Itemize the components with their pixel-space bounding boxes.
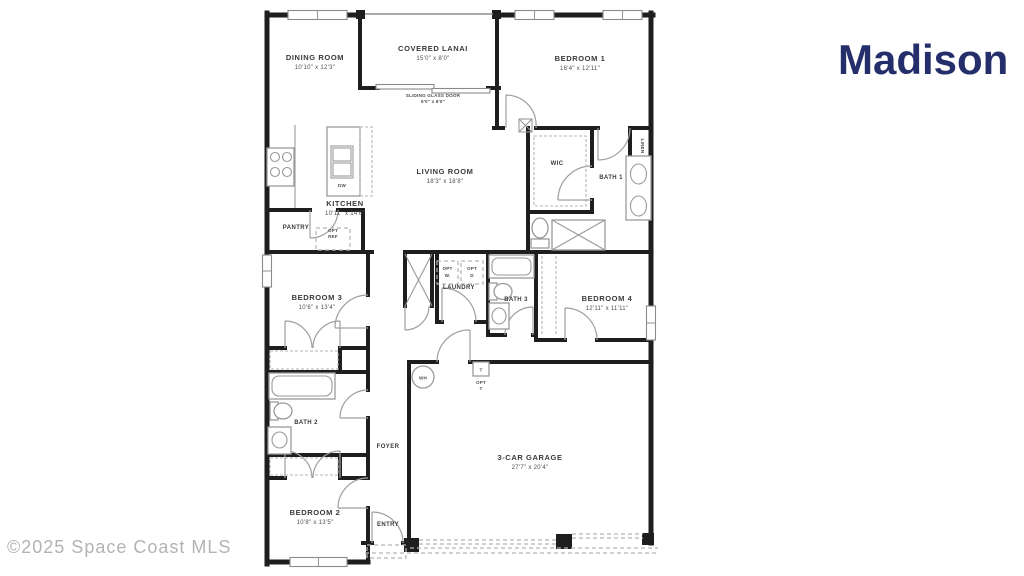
room-dims-bedroom3: 10'6" x 13'4" <box>299 305 336 311</box>
plan-name-title: Madison <box>838 36 1008 84</box>
room-dims-living: 18'3" x 18'8" <box>427 179 464 185</box>
label-opt-dryer-2: D <box>470 273 474 278</box>
room-label-entry: ENTRY <box>377 522 399 528</box>
room-dims-bedroom1: 16'4" x 12'11" <box>560 66 600 72</box>
floorplan-page: DINING ROOM 10'10" x 12'3" COVERED LANAI… <box>0 0 1024 576</box>
label-opt-ref-1: OPT <box>328 228 338 233</box>
label-opt-tank-1: OPT <box>476 380 486 385</box>
label-water-heater: WH <box>419 376 428 381</box>
bath2-fixtures <box>268 373 335 454</box>
label-opt-dryer-1: OPT <box>467 266 477 271</box>
label-opt-ref-2: REF <box>328 234 338 239</box>
room-label-laundry: LAUNDRY <box>443 285 475 291</box>
hall-linen-closet <box>405 254 432 306</box>
room-label-lanai: COVERED LANAI <box>398 44 468 53</box>
room-label-kitchen: KITCHEN <box>326 199 364 208</box>
mls-watermark: ©2025 Space Coast MLS <box>7 537 231 558</box>
dims-sliding-glass-door: 6'0" x 8'0" <box>421 99 445 104</box>
bedroom4-closet-rod <box>542 256 556 336</box>
room-label-bath1: BATH 1 <box>599 175 623 181</box>
room-label-bedroom3: BEDROOM 3 <box>292 293 343 302</box>
room-label-pantry: PANTRY <box>283 225 309 231</box>
bedroom2-closet <box>270 458 338 475</box>
range-icon <box>267 125 295 208</box>
sliding-glass-door <box>376 85 490 94</box>
room-label-living: LIVING ROOM <box>416 167 473 176</box>
room-label-bath2: BATH 2 <box>294 420 318 426</box>
room-label-linen: LINEN <box>640 139 645 154</box>
room-label-bath3: BATH 3 <box>504 297 528 303</box>
room-dims-lanai: 15'0" x 8'0" <box>416 56 449 62</box>
room-label-bedroom2: BEDROOM 2 <box>290 508 341 517</box>
label-opt-washer-1: OPT <box>442 266 452 271</box>
label-opt-tank-2: T <box>479 386 482 391</box>
room-label-garage: 3-CAR GARAGE <box>497 453 562 462</box>
wic-shelving <box>534 136 586 206</box>
room-dims-garage: 27'7" x 20'4" <box>512 465 549 471</box>
label-opt-washer-2: W. <box>445 273 451 278</box>
attic-access-box <box>519 119 532 132</box>
room-label-bedroom4: BEDROOM 4 <box>582 294 633 303</box>
room-label-foyer: FOYER <box>377 444 400 450</box>
room-dims-kitchen: 10'11" x 14'6" <box>325 211 365 217</box>
floorplan-drawing: DINING ROOM 10'10" x 12'3" COVERED LANAI… <box>0 0 1024 576</box>
room-label-dining: DINING ROOM <box>286 53 344 62</box>
kitchen-island <box>327 127 372 196</box>
room-dims-bedroom2: 10'8" x 13'5" <box>297 520 334 526</box>
room-label-wic: WIC <box>551 161 564 167</box>
room-dims-dining: 10'10" x 12'3" <box>295 65 335 71</box>
label-tank-box: T <box>479 368 482 373</box>
room-label-bedroom1: BEDROOM 1 <box>555 54 606 63</box>
label-dishwasher: DW <box>338 183 347 188</box>
room-dims-bedroom4: 12'11" x 11'11" <box>586 306 629 312</box>
bedroom3-closet <box>270 351 338 369</box>
label-sliding-glass-door: SLIDING GLASS DOOR <box>406 93 461 98</box>
